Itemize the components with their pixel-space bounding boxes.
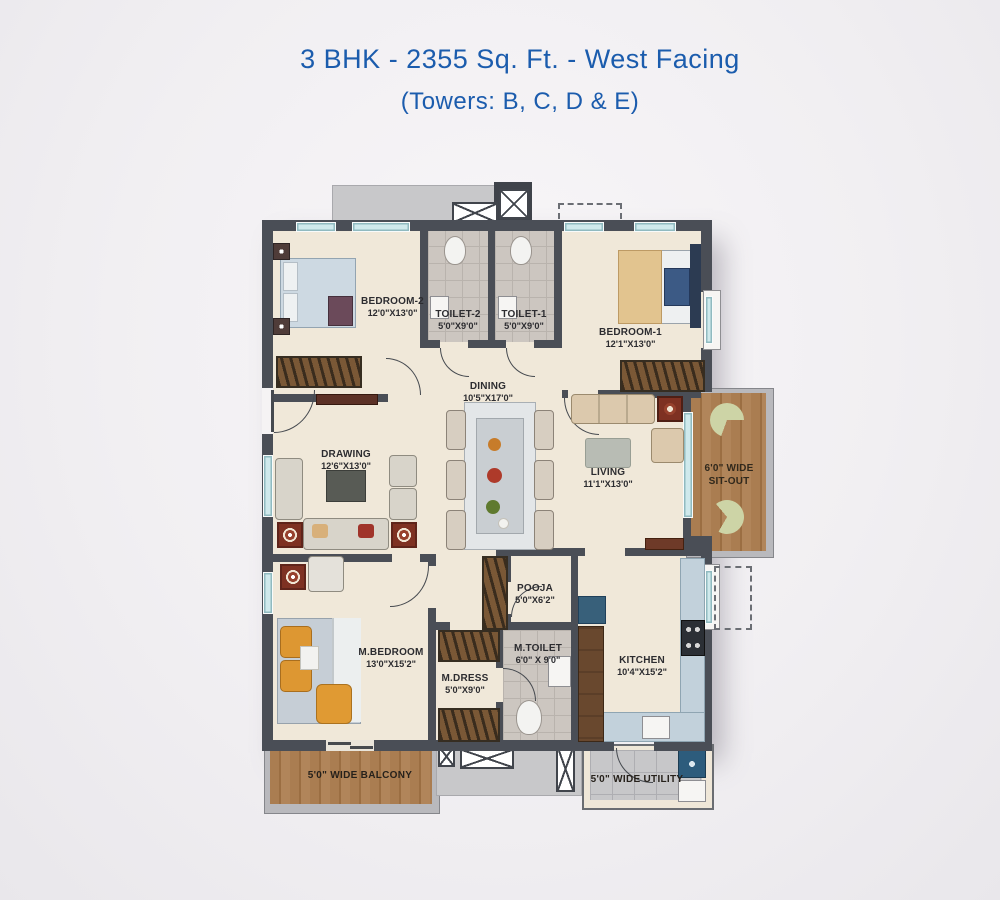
bay-window-kitchen-glass <box>705 570 713 624</box>
dining-cup-icon <box>498 518 509 529</box>
mbed-pillow-white-icon <box>300 646 319 670</box>
living-label: LIVING 11'1"X13'0" <box>558 466 658 491</box>
toilet1-label: TOILET-1 5'0"X9'0" <box>492 308 556 333</box>
balcony-door-leaf <box>328 742 351 745</box>
dining-chair-icon <box>534 410 554 450</box>
mdress-wardrobe-icon <box>438 708 500 742</box>
balcony-label: 5'0" WIDE BALCONY <box>290 770 430 781</box>
drawing-rug-icon <box>326 470 366 502</box>
living-sofa-icon <box>571 394 655 424</box>
living-dims: 11'1"X13'0" <box>558 479 658 491</box>
window-bed1-a <box>564 222 604 232</box>
bedroom1-name: BEDROOM-1 <box>578 326 683 339</box>
bedroom2-name: BEDROOM-2 <box>340 295 445 308</box>
bay-window-bed1-glass <box>705 296 713 344</box>
stove-icon <box>681 620 705 656</box>
toilet2-name: TOILET-2 <box>426 308 490 321</box>
drawing-label: DRAWING 12'6"X13'0" <box>296 448 396 473</box>
sitout-line2: SIT-OUT <box>694 475 764 488</box>
bed2-pillow-icon <box>283 262 298 291</box>
dining-name: DINING <box>438 380 538 393</box>
column-icon <box>556 746 575 792</box>
wall-mdress-top-a <box>436 622 450 630</box>
living-console-icon <box>645 538 684 550</box>
toilet2-wc-icon <box>444 236 466 265</box>
mdress-dims: 5'0"X9'0" <box>432 685 498 697</box>
drawing-name: DRAWING <box>296 448 396 461</box>
bed1-blanket-icon <box>618 250 662 324</box>
wall-kitchen-left <box>571 556 578 742</box>
toilet2-label: TOILET-2 5'0"X9'0" <box>426 308 490 333</box>
mtoilet-wc-icon <box>516 700 542 735</box>
sitout-label: 6'0" WIDE SIT-OUT <box>694 462 764 488</box>
dining-chair-icon <box>534 510 554 550</box>
mbedroom-name: M.BEDROOM <box>336 646 446 659</box>
sitout-chair-icon <box>710 403 744 437</box>
fridge-icon <box>578 596 606 624</box>
dining-dims: 10'5"X17'0" <box>438 393 538 405</box>
kitchen-duct-dashed-box <box>714 566 752 630</box>
window-bed2-b <box>352 222 410 232</box>
sitout-slider-glass <box>683 412 693 518</box>
utility-label: 5'0" WIDE UTILITY <box>578 774 696 785</box>
mbedroom-label: M.BEDROOM 13'0"X15'2" <box>336 646 446 671</box>
page-subtitle: (Towers: B, C, D & E) <box>40 88 1000 116</box>
pooja-name: POOJA <box>504 582 566 595</box>
balcony-door-leaf <box>350 746 373 749</box>
toilet1-name: TOILET-1 <box>492 308 556 321</box>
dining-dish-icon <box>486 500 500 514</box>
mdress-name: M.DRESS <box>432 672 498 685</box>
lift-icon <box>499 189 529 219</box>
kitchen-label: KITCHEN 10'4"X15'2" <box>596 654 688 679</box>
toilet2-dims: 5'0"X9'0" <box>426 321 490 333</box>
wall-left-upper <box>262 220 273 388</box>
wall-right-b1a <box>701 220 712 292</box>
dining-chair-icon <box>446 410 466 450</box>
floor-plan-page: 3 BHK - 2355 Sq. Ft. - West Facing (Towe… <box>0 0 1000 900</box>
wall-mbed-right-a <box>428 554 436 566</box>
bed2-side-table-icon <box>273 243 290 260</box>
window-bed2-a <box>296 222 336 232</box>
kitchen-sink-icon <box>642 716 670 739</box>
column-icon <box>460 748 514 769</box>
bed1-headboard-icon <box>690 244 701 328</box>
mdress-label: M.DRESS 5'0"X9'0" <box>432 672 498 697</box>
mdress-wardrobe-icon <box>438 630 500 662</box>
mbed-armchair-icon <box>308 556 344 592</box>
bedroom1-dims: 12'1"X13'0" <box>578 339 683 351</box>
mbed-side-table-icon <box>280 564 306 590</box>
living-wall-art-icon <box>657 396 683 422</box>
mtoilet-dims: 6'0" X 9'0" <box>504 655 572 667</box>
bed1-wardrobe-icon <box>620 360 705 392</box>
mtoilet-label: M.TOILET 6'0" X 9'0" <box>504 642 572 667</box>
tv-console-icon <box>316 394 378 405</box>
dining-dish-icon <box>488 438 501 451</box>
bed1-pillow-icon <box>664 268 690 306</box>
window-bed1-b <box>634 222 676 232</box>
bed2-wardrobe-icon <box>276 356 362 388</box>
drawing-dims: 12'6"X13'0" <box>296 461 396 473</box>
sitout-line1: 6'0" WIDE <box>694 462 764 475</box>
wall-bottom-a <box>262 740 326 751</box>
pooja-dims: 5'0"X6'2" <box>504 595 566 607</box>
drawing-side-table-icon <box>391 522 417 548</box>
kitchen-dims: 10'4"X15'2" <box>596 667 688 679</box>
drawing-cushion-icon <box>312 524 328 538</box>
living-armchair-icon <box>651 428 684 463</box>
dining-chair-icon <box>534 460 554 500</box>
living-rug-icon <box>585 438 631 468</box>
pooja-label: POOJA 5'0"X6'2" <box>504 582 566 607</box>
dining-chair-icon <box>446 460 466 500</box>
mbedroom-dims: 13'0"X15'2" <box>336 659 446 671</box>
drawing-cushion-icon <box>358 524 374 538</box>
window-drawing <box>263 455 273 517</box>
bedroom1-label: BEDROOM-1 12'1"X13'0" <box>578 326 683 351</box>
toilet1-dims: 5'0"X9'0" <box>492 321 556 333</box>
toilet1-wc-icon <box>510 236 532 265</box>
wall-slider-b <box>683 516 691 536</box>
page-title: 3 BHK - 2355 Sq. Ft. - West Facing <box>40 44 1000 75</box>
wall-toilets-sill-a <box>420 340 440 348</box>
kitchen-tall-cabinet-icon <box>578 626 604 742</box>
window-mbedroom <box>263 572 273 614</box>
wall-bed1-stub <box>562 390 568 398</box>
mbed-throw-icon <box>316 684 352 724</box>
wall-toilets-sill-b <box>468 340 506 348</box>
mtoilet-name: M.TOILET <box>504 642 572 655</box>
drawing-chair-icon <box>389 488 417 520</box>
bed2-side-table-icon <box>273 318 290 335</box>
kitchen-name: KITCHEN <box>596 654 688 667</box>
wall-passage-stub <box>420 554 428 562</box>
wall-slider-a <box>683 392 691 412</box>
wall-toilets-sill-c <box>534 340 562 348</box>
dining-label: DINING 10'5"X17'0" <box>438 380 538 405</box>
dining-dish-icon <box>487 468 502 483</box>
living-name: LIVING <box>558 466 658 479</box>
drawing-side-table-icon <box>277 522 303 548</box>
dining-chair-icon <box>446 510 466 550</box>
